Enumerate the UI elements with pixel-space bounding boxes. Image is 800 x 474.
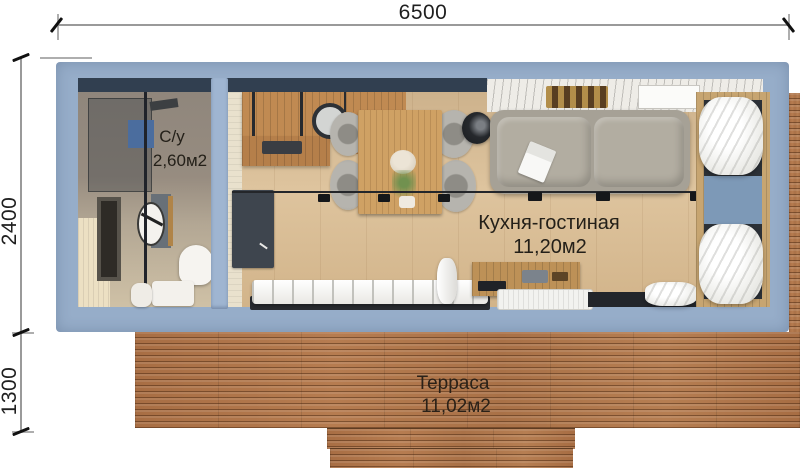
shower-rail (144, 92, 147, 303)
skylight (638, 85, 700, 109)
dim-label-terrace-depth: 1300 (0, 331, 22, 451)
duvet (699, 224, 763, 304)
duvet (699, 97, 763, 175)
bathroom-niche (97, 197, 121, 281)
top-wall-lintel (78, 78, 487, 92)
toilet (179, 245, 213, 285)
terrace-step-lower (330, 448, 573, 468)
loft-rail (232, 191, 742, 193)
bathroom-label: С/у (132, 127, 212, 147)
counter-divider (252, 92, 255, 136)
duvet (645, 282, 697, 306)
bath-bin (131, 283, 152, 307)
counter-divider (300, 92, 303, 136)
rail-bracket (528, 192, 542, 201)
terrace-side-deck (789, 93, 800, 332)
rail-bracket (318, 194, 330, 202)
dim-extension-line (40, 57, 92, 59)
dining-chair (436, 160, 476, 212)
curtain (437, 258, 457, 304)
terrace-label: Терраса (378, 373, 528, 395)
terrace-area-label: 11,02м2 (381, 396, 531, 418)
tv-cabinet (232, 190, 274, 268)
dim-label-width: 6500 (57, 1, 789, 25)
sofa-cushion (594, 117, 684, 187)
kitchen-living-area-label: 11,20м2 (450, 236, 650, 259)
kitchen-living-label: Кухня-гостиная (449, 212, 649, 235)
partition-wall (211, 78, 228, 309)
floor-lamp (462, 112, 492, 144)
rail-bracket (378, 194, 390, 202)
table-vase (399, 196, 415, 208)
desk-tray (522, 270, 548, 283)
counter-tray (262, 141, 302, 154)
ac-unit (497, 289, 593, 310)
rail-bracket (596, 192, 610, 201)
side-window (704, 176, 762, 224)
towel-bar (168, 196, 173, 246)
floor-plan: С/у 2,60м2 Кухня-гостиная 11,20м2 Террас… (0, 0, 800, 474)
dim-label-house-depth: 2400 (0, 161, 22, 281)
rail-bracket (438, 194, 450, 202)
desk-item (552, 272, 568, 281)
bath-stool (152, 281, 194, 306)
loft-stairs (344, 92, 406, 112)
rug (546, 86, 608, 108)
terrace-step-upper (327, 428, 575, 449)
bathroom-area-label: 2,60м2 (140, 151, 220, 171)
